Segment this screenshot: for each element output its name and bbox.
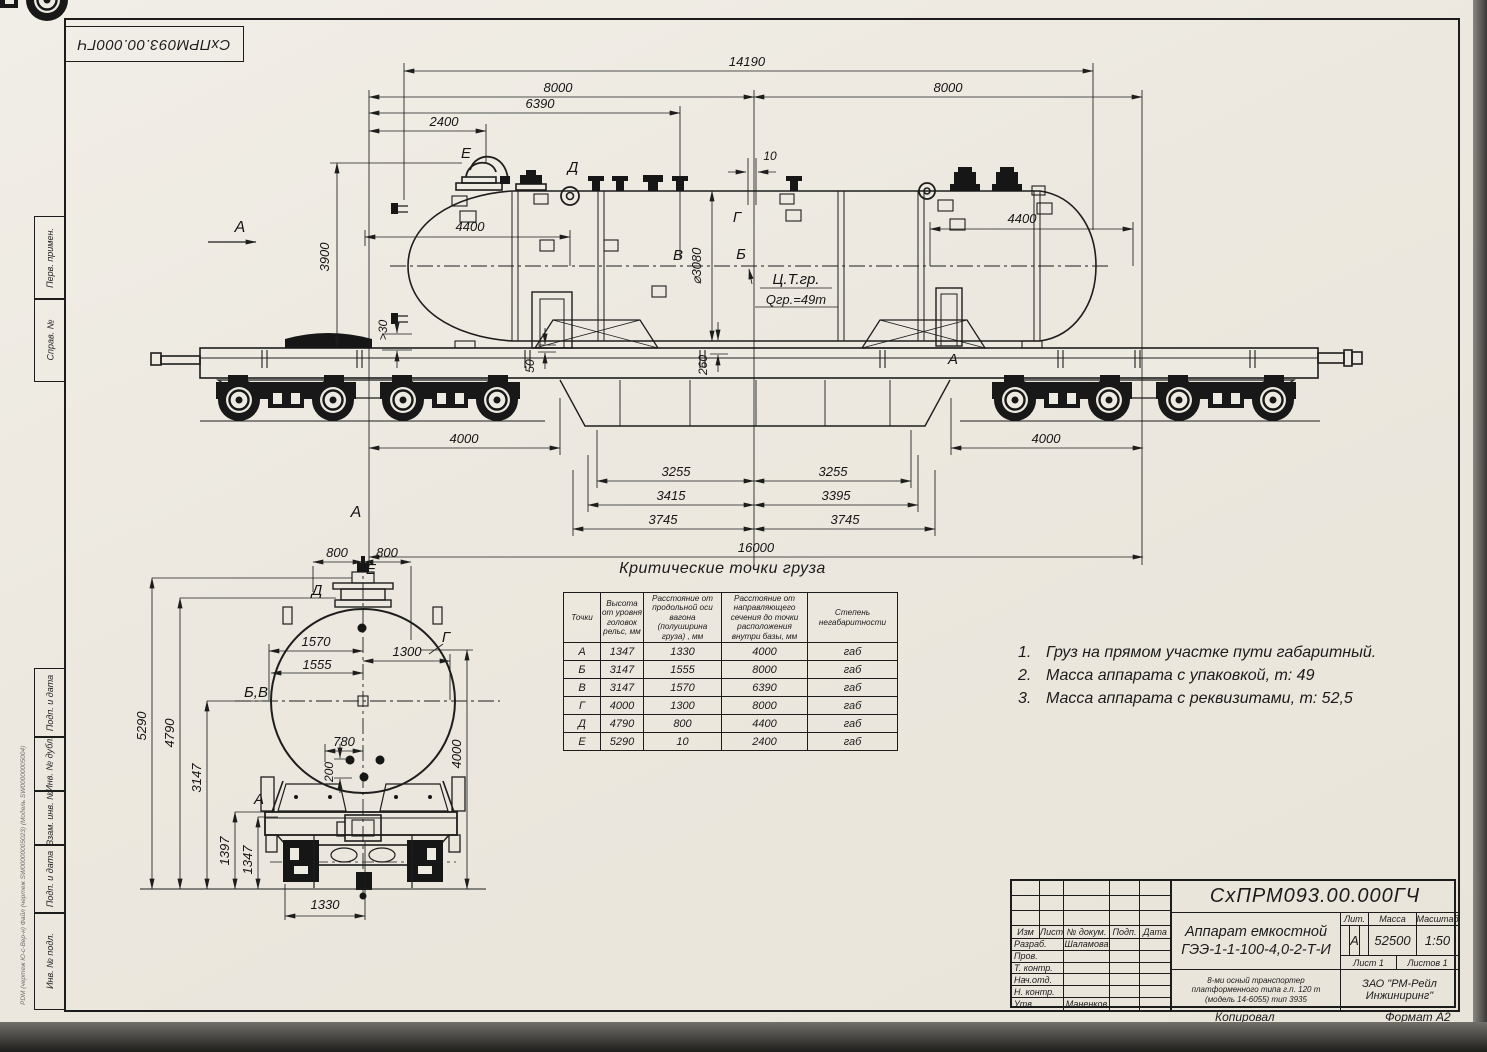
table-cell: 6390 (722, 679, 808, 697)
tb-role: Т. контр. (1012, 963, 1064, 975)
tb-col-dokum: № докум. (1064, 926, 1110, 939)
table-cell: 10 (644, 733, 722, 751)
note-text: Масса аппарата с реквизитами, т: 52,5 (1046, 690, 1353, 708)
table-title: Критические точки груза (563, 560, 882, 578)
table-cell: 1300 (644, 697, 722, 715)
critical-points-table: Критические точки груза Точки Высота от … (563, 560, 882, 751)
top-stamp-number: СхПРМ093.00.000ГЧ (77, 36, 230, 53)
tb-scale-header: Масштаб (1417, 913, 1458, 926)
tb-col-data: Дата (1140, 926, 1171, 939)
margin-box-sprav: Справ. № (34, 298, 66, 382)
table-cell: габ (808, 643, 898, 661)
tb-name: Шаламова (1064, 939, 1110, 951)
tb-mass-header: Масса (1369, 913, 1417, 926)
table-header-row: Точки Высота от уровня головок рельс, мм… (564, 593, 898, 643)
table-cell: 8000 (722, 697, 808, 715)
note-item: 3.Масса аппарата с реквизитами, т: 52,5 (1018, 690, 1448, 708)
table-cell: 8000 (722, 661, 808, 679)
table-cell: габ (808, 661, 898, 679)
tb-name (1064, 963, 1110, 975)
note-text: Груз на прямом участке пути габаритный. (1046, 644, 1376, 662)
tb-lit-value: А (1350, 926, 1360, 956)
tb-product-line2: ГЭЭ-1-1-100-4,0-2-Т-И (1181, 941, 1331, 959)
tb-product-name: Аппарат емкостной ГЭЭ-1-1-100-4,0-2-Т-И (1171, 913, 1341, 970)
table-cell: 4000 (722, 643, 808, 661)
table-cell: Д (564, 715, 601, 733)
table-cell: габ (808, 715, 898, 733)
note-number: 1. (1018, 644, 1046, 662)
tb-mass-value: 52500 (1369, 926, 1417, 956)
table-cell: 2400 (722, 733, 808, 751)
note-number: 3. (1018, 690, 1046, 708)
margin-box-podp-data-2: Подп. и дата (34, 844, 66, 914)
scanner-background-right (1473, 0, 1487, 1022)
table-cell: А (564, 643, 601, 661)
note-item: 1.Груз на прямом участке пути габаритный… (1018, 644, 1448, 662)
table-cell: габ (808, 697, 898, 715)
table-cell: Г (564, 697, 601, 715)
scanner-background-bottom (0, 1022, 1487, 1052)
column-header: Расстояние от направляющего сечения до т… (722, 593, 808, 643)
margin-box-vzam-inv: Взам. инв. № (34, 790, 66, 846)
note-item: 2.Масса аппарата с упаковкой, т: 49 (1018, 667, 1448, 685)
note-text: Масса аппарата с упаковкой, т: 49 (1046, 667, 1314, 685)
table-row: Д47908004400габ (564, 715, 898, 733)
table-cell: габ (808, 733, 898, 751)
tb-name: Маненков (1064, 998, 1110, 1010)
table-row: Е5290102400габ (564, 733, 898, 751)
sheet-inner-frame (64, 18, 1460, 1012)
tb-col-izm: Изм (1012, 926, 1040, 939)
margin-label: Перв. примен. (45, 228, 55, 288)
table-cell: 4400 (722, 715, 808, 733)
table-cell: 4790 (601, 715, 644, 733)
tb-role: Разраб. (1012, 939, 1064, 951)
drawing-sheet: СхПРМ093.00.000ГЧ Перв. примен. Справ. №… (0, 0, 1473, 1022)
table-row: А134713304000габ (564, 643, 898, 661)
tb-scale-value: 1:50 (1417, 926, 1458, 956)
column-header: Степень негабаритности (808, 593, 898, 643)
margin-label: Подп. и дата (45, 851, 55, 907)
top-stamp-box: СхПРМ093.00.000ГЧ (64, 26, 244, 62)
column-header: Высота от уровня головок рельс, мм (601, 593, 644, 643)
table-cell: 1555 (644, 661, 722, 679)
table-cell: 1570 (644, 679, 722, 697)
notes-list: 1.Груз на прямом участке пути габаритный… (1018, 644, 1448, 713)
tb-name (1064, 986, 1110, 998)
tb-sheet-number: Лист 1 (1341, 956, 1397, 970)
tb-role: Н. контр. (1012, 986, 1064, 998)
tb-lit-header: Лит. (1341, 913, 1369, 926)
table-cell: 3147 (601, 679, 644, 697)
table-row: В314715706390габ (564, 679, 898, 697)
margin-box-inv-podl: Инв. № подл. (34, 912, 66, 1010)
table-cell: габ (808, 679, 898, 697)
tb-name (1064, 951, 1110, 963)
tb-role: Нач.отд. (1012, 974, 1064, 986)
tb-document-number: СхПРМ093.00.000ГЧ (1171, 881, 1458, 913)
margin-box-podp-data-1: Подп. и дата (34, 668, 66, 738)
table-cell: Е (564, 733, 601, 751)
tb-company: ЗАО "РМ-Рейл Инжиниринг" (1341, 970, 1458, 1010)
margin-box-inv-dubl: Инв. № дубл. (34, 736, 66, 792)
table-row: Б314715558000габ (564, 661, 898, 679)
table-cell: В (564, 679, 601, 697)
table-cell: Б (564, 661, 601, 679)
table-cell: 4000 (601, 697, 644, 715)
margin-label: Инв. № подл. (45, 933, 55, 989)
tb-role: Утв. (1012, 998, 1064, 1010)
column-header: Расстояние от продольной оси вагона (пол… (644, 593, 722, 643)
tb-col-list: Лист (1040, 926, 1064, 939)
title-block: Изм Лист № докум. Подп. Дата Разраб. Шал… (1010, 879, 1456, 1008)
margin-box-perv-primen: Перв. примен. (34, 216, 66, 300)
tb-role: Пров. (1012, 951, 1064, 963)
tb-name (1064, 974, 1110, 986)
table-cell: 3147 (601, 661, 644, 679)
table-cell: 800 (644, 715, 722, 733)
margin-label: Взам. инв. № (45, 790, 55, 846)
tb-col-podp: Подп. (1110, 926, 1140, 939)
tb-transporter-note: 8-ми осный транспортер платформенного ти… (1171, 970, 1341, 1010)
pdm-reference-line: PDM (чертеж Ю-с-Вер-н) Файл (чертеж SW00… (20, 633, 27, 1005)
table-cell: 5290 (601, 733, 644, 751)
table-cell: 1347 (601, 643, 644, 661)
margin-label: Справ. № (45, 320, 55, 361)
table-row: Г400013008000габ (564, 697, 898, 715)
column-header: Точки (564, 593, 601, 643)
tb-sheets-total: Листов 1 (1397, 956, 1458, 970)
margin-label: Инв. № дубл. (45, 736, 55, 791)
table-cell: 1330 (644, 643, 722, 661)
tb-product-line1: Аппарат емкостной (1185, 923, 1327, 941)
note-number: 2. (1018, 667, 1046, 685)
margin-label: Подп. и дата (45, 675, 55, 731)
